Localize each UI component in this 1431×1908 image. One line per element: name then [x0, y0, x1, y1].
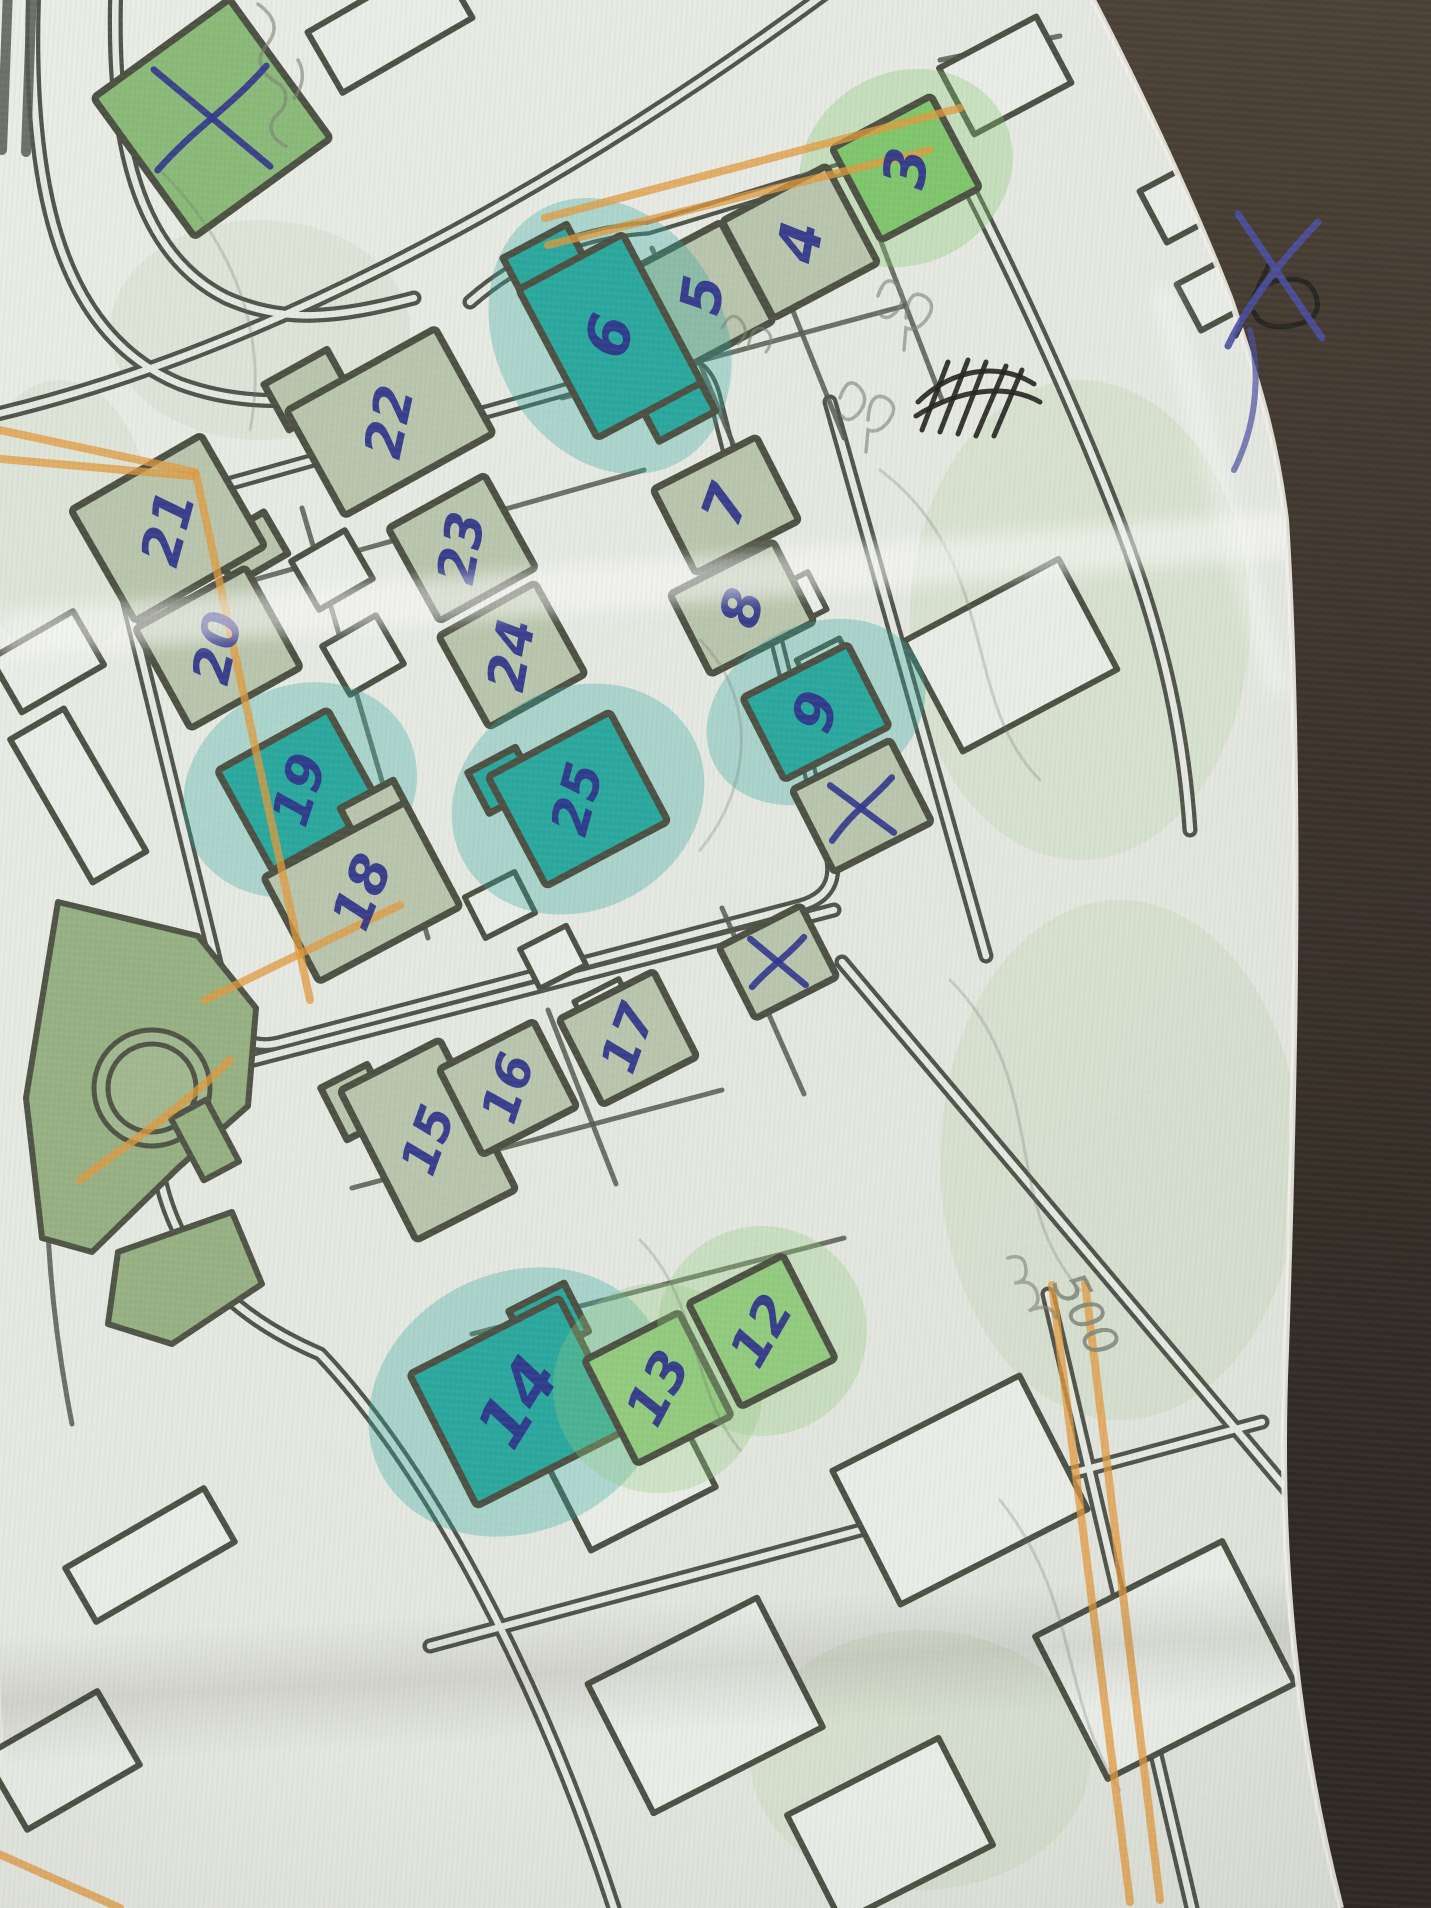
map-photo: 500 34567892221232024192518151617141312 — [0, 0, 1431, 1908]
building-number-24: 24 — [476, 614, 548, 696]
paper-map: 500 34567892221232024192518151617141312 — [0, 0, 1431, 1908]
